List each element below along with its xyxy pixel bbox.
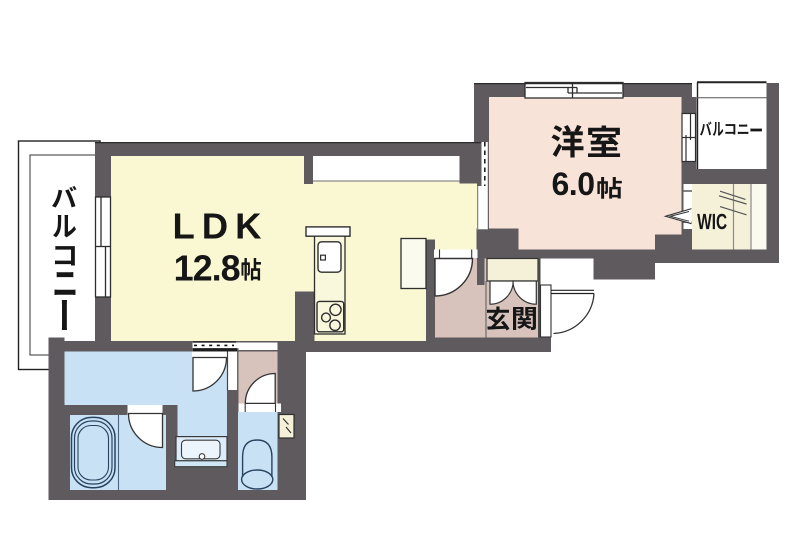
svg-text:LDK: LDK <box>173 205 269 246</box>
svg-text:6.0: 6.0 <box>552 166 595 202</box>
svg-text:12.8: 12.8 <box>174 248 240 289</box>
